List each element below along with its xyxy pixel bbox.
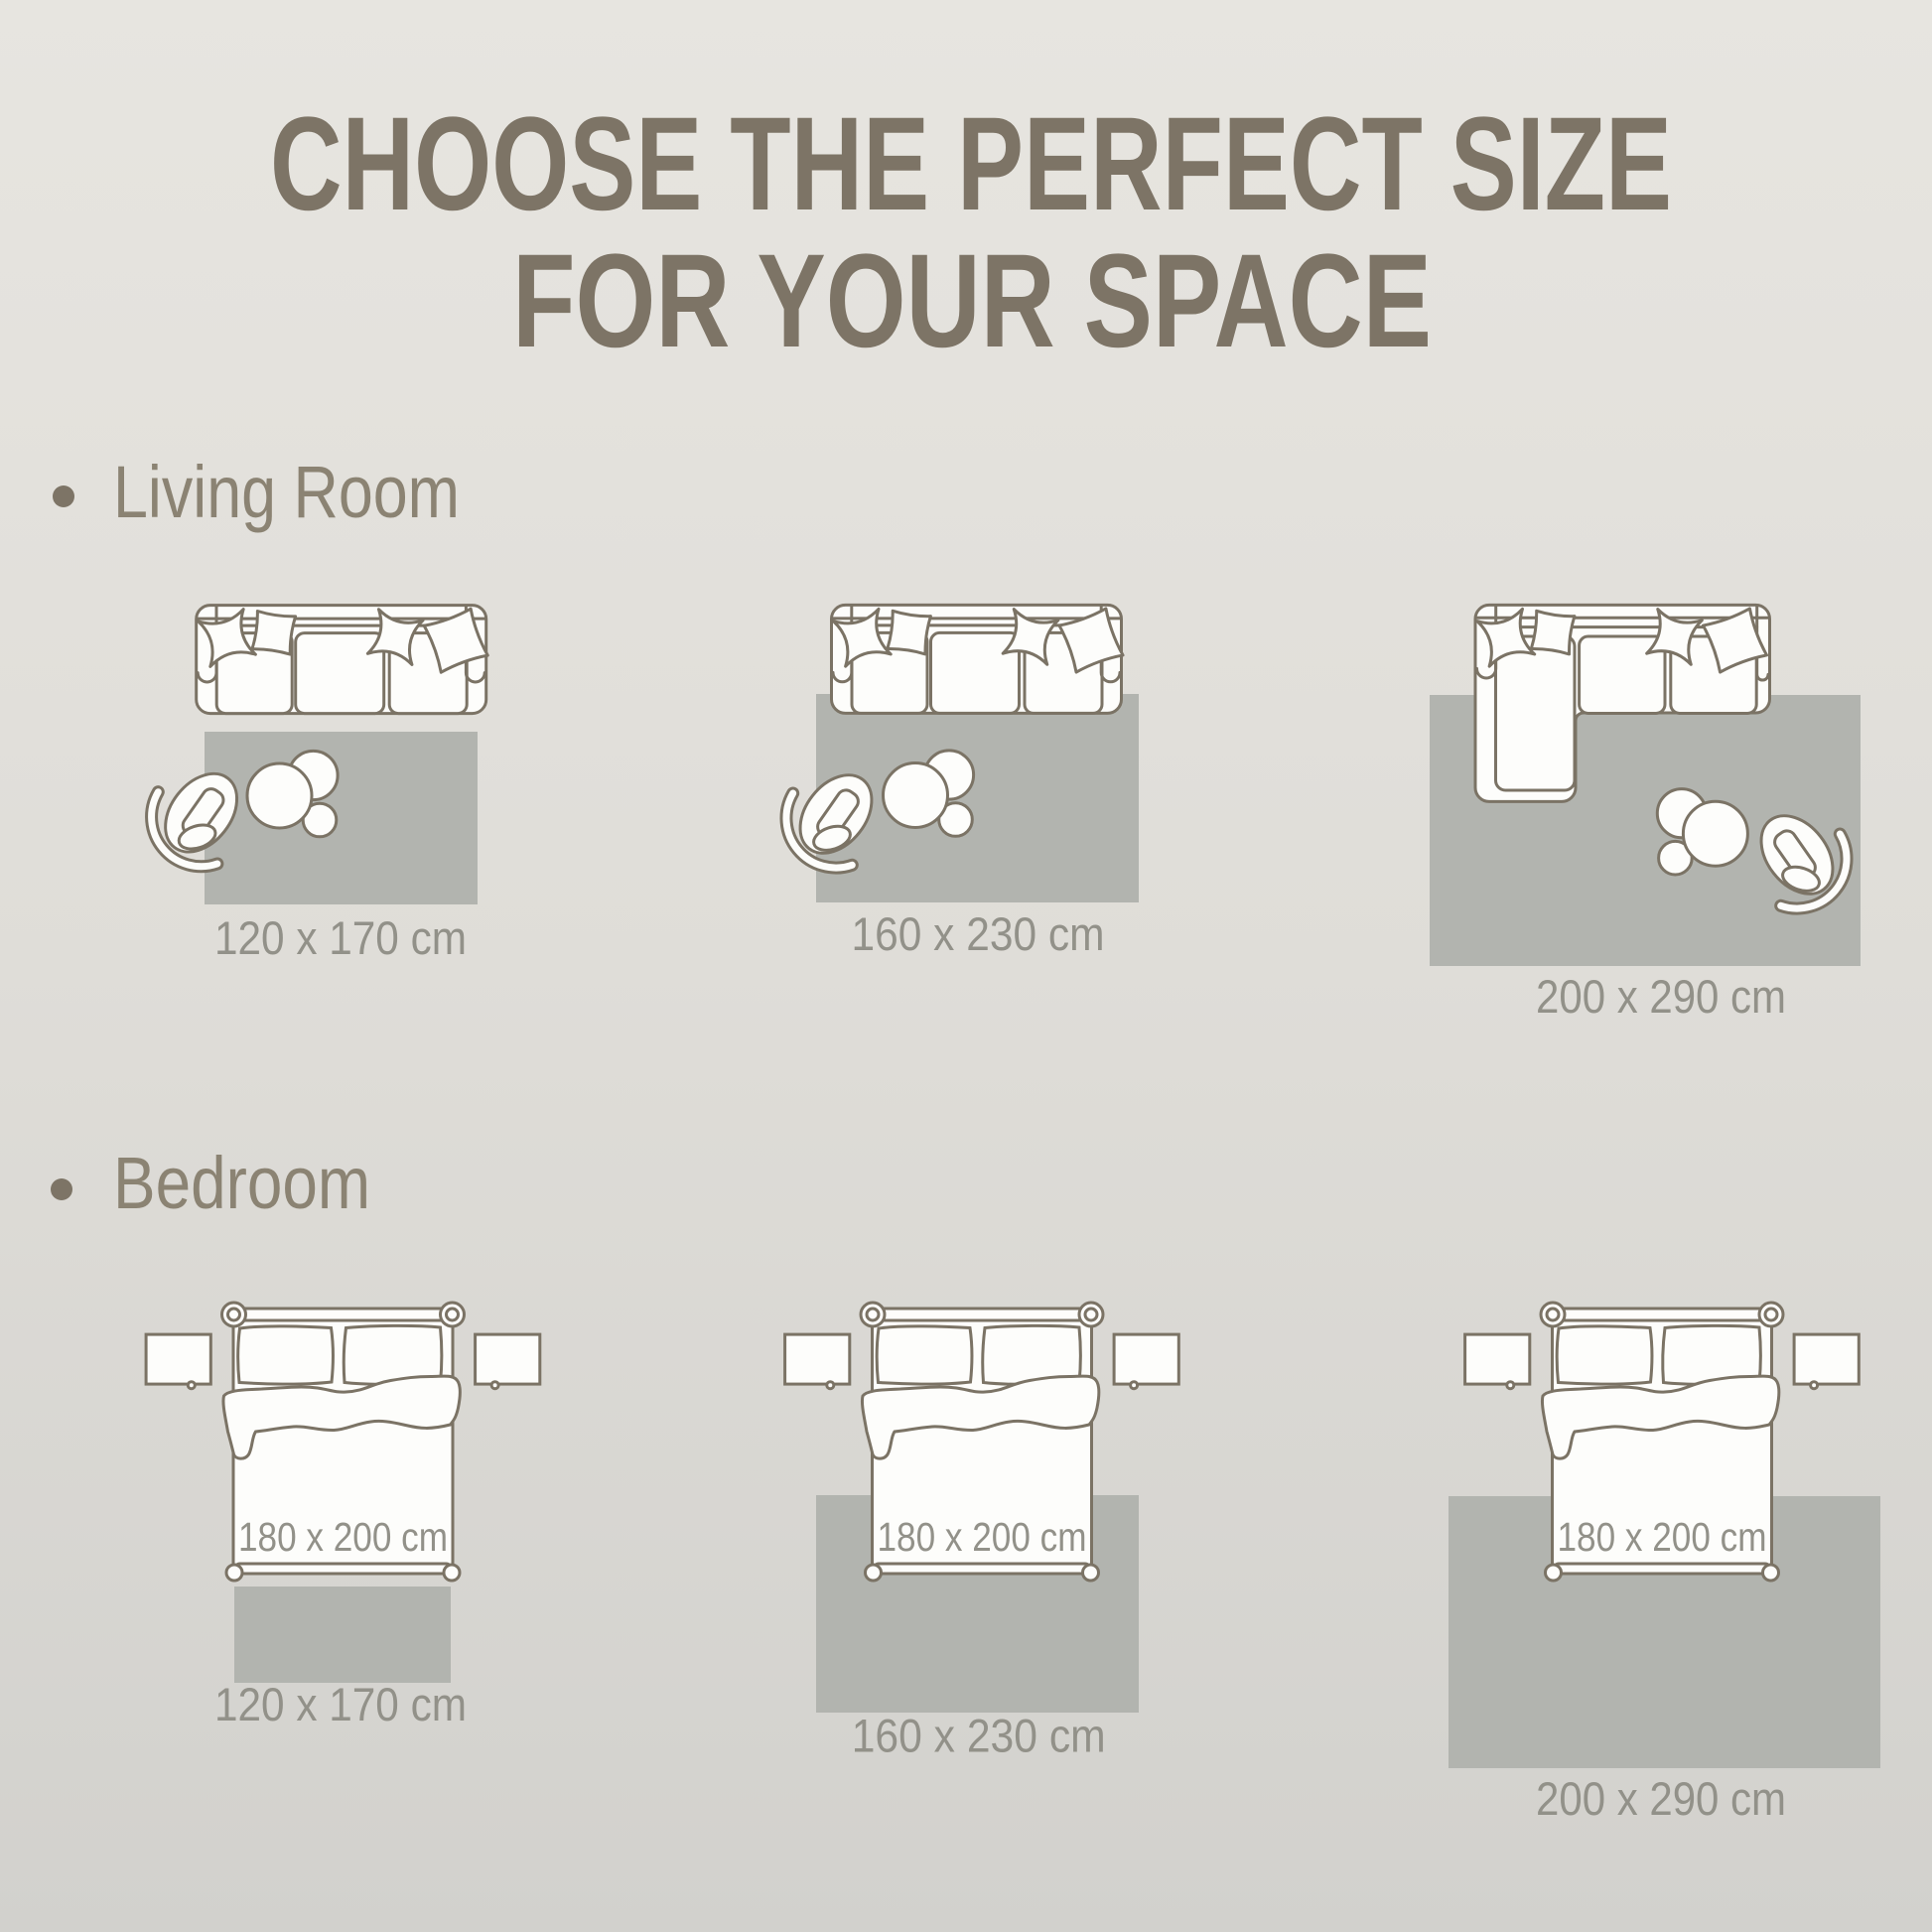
svg-text:Living Room: Living Room — [113, 451, 460, 533]
svg-text:FOR YOUR SPACE: FOR YOUR SPACE — [512, 227, 1432, 375]
svg-text:180 x 200 cm: 180 x 200 cm — [1558, 1514, 1767, 1560]
svg-text:120 x 170 cm: 120 x 170 cm — [214, 1678, 467, 1730]
svg-text:Bedroom: Bedroom — [113, 1142, 370, 1224]
svg-text:180 x 200 cm: 180 x 200 cm — [878, 1514, 1087, 1560]
svg-text:160 x 230 cm: 160 x 230 cm — [852, 907, 1105, 960]
svg-text:200 x 290 cm: 200 x 290 cm — [1536, 970, 1786, 1023]
svg-text:200 x 290 cm: 200 x 290 cm — [1536, 1772, 1786, 1825]
svg-text:120 x 170 cm: 120 x 170 cm — [214, 911, 467, 964]
svg-text:160 x 230 cm: 160 x 230 cm — [852, 1710, 1106, 1762]
svg-text:CHOOSE THE PERFECT SIZE: CHOOSE THE PERFECT SIZE — [270, 90, 1672, 238]
svg-text:180 x 200 cm: 180 x 200 cm — [238, 1514, 448, 1560]
